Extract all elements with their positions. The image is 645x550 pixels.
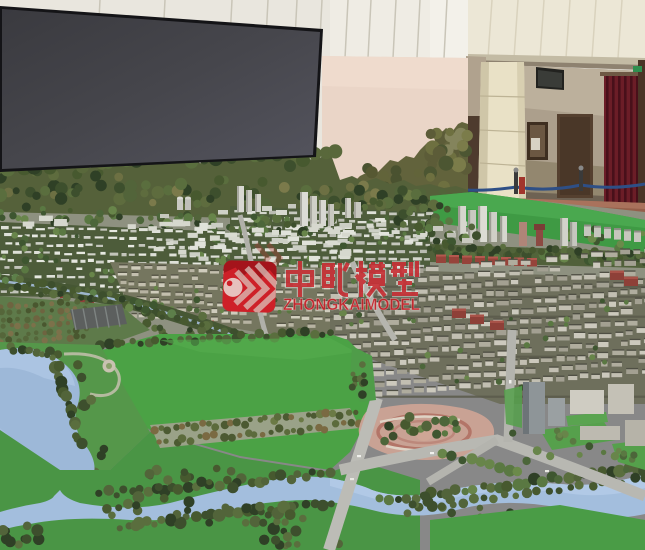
svg-text:ZHONGKAIMODEL: ZHONGKAIMODEL xyxy=(283,296,420,314)
